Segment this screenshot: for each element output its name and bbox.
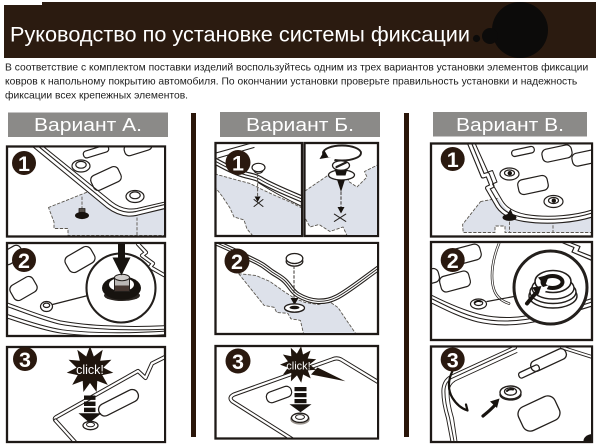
- svg-text:2: 2: [231, 250, 243, 274]
- svg-text:3: 3: [232, 350, 244, 374]
- svg-text:2: 2: [447, 249, 459, 273]
- svg-text:Руководство по установке систе: Руководство по установке системы фиксаци…: [10, 22, 470, 47]
- svg-text:Вариант Б.: Вариант Б.: [246, 115, 354, 135]
- svg-text:3: 3: [19, 348, 31, 372]
- svg-text:3: 3: [447, 348, 459, 372]
- svg-text:click!: click!: [76, 363, 104, 377]
- svg-text:1: 1: [18, 152, 30, 176]
- svg-text:2: 2: [18, 249, 30, 273]
- svg-text:1: 1: [447, 148, 459, 172]
- svg-text:В соответствие с комплектом по: В соответствие с комплектом поставки изд…: [5, 62, 588, 74]
- svg-text:Вариант В.: Вариант В.: [456, 115, 564, 135]
- svg-text:click!: click!: [286, 361, 310, 373]
- svg-text:1: 1: [232, 151, 244, 175]
- svg-text:фиксации всех крепежных элемен: фиксации всех крепежных элементов.: [5, 90, 188, 102]
- svg-text:ковров к напольному покрытию а: ковров к напольному покрытию автомобиля.…: [5, 76, 577, 88]
- svg-text:Вариант А.: Вариант А.: [34, 115, 142, 135]
